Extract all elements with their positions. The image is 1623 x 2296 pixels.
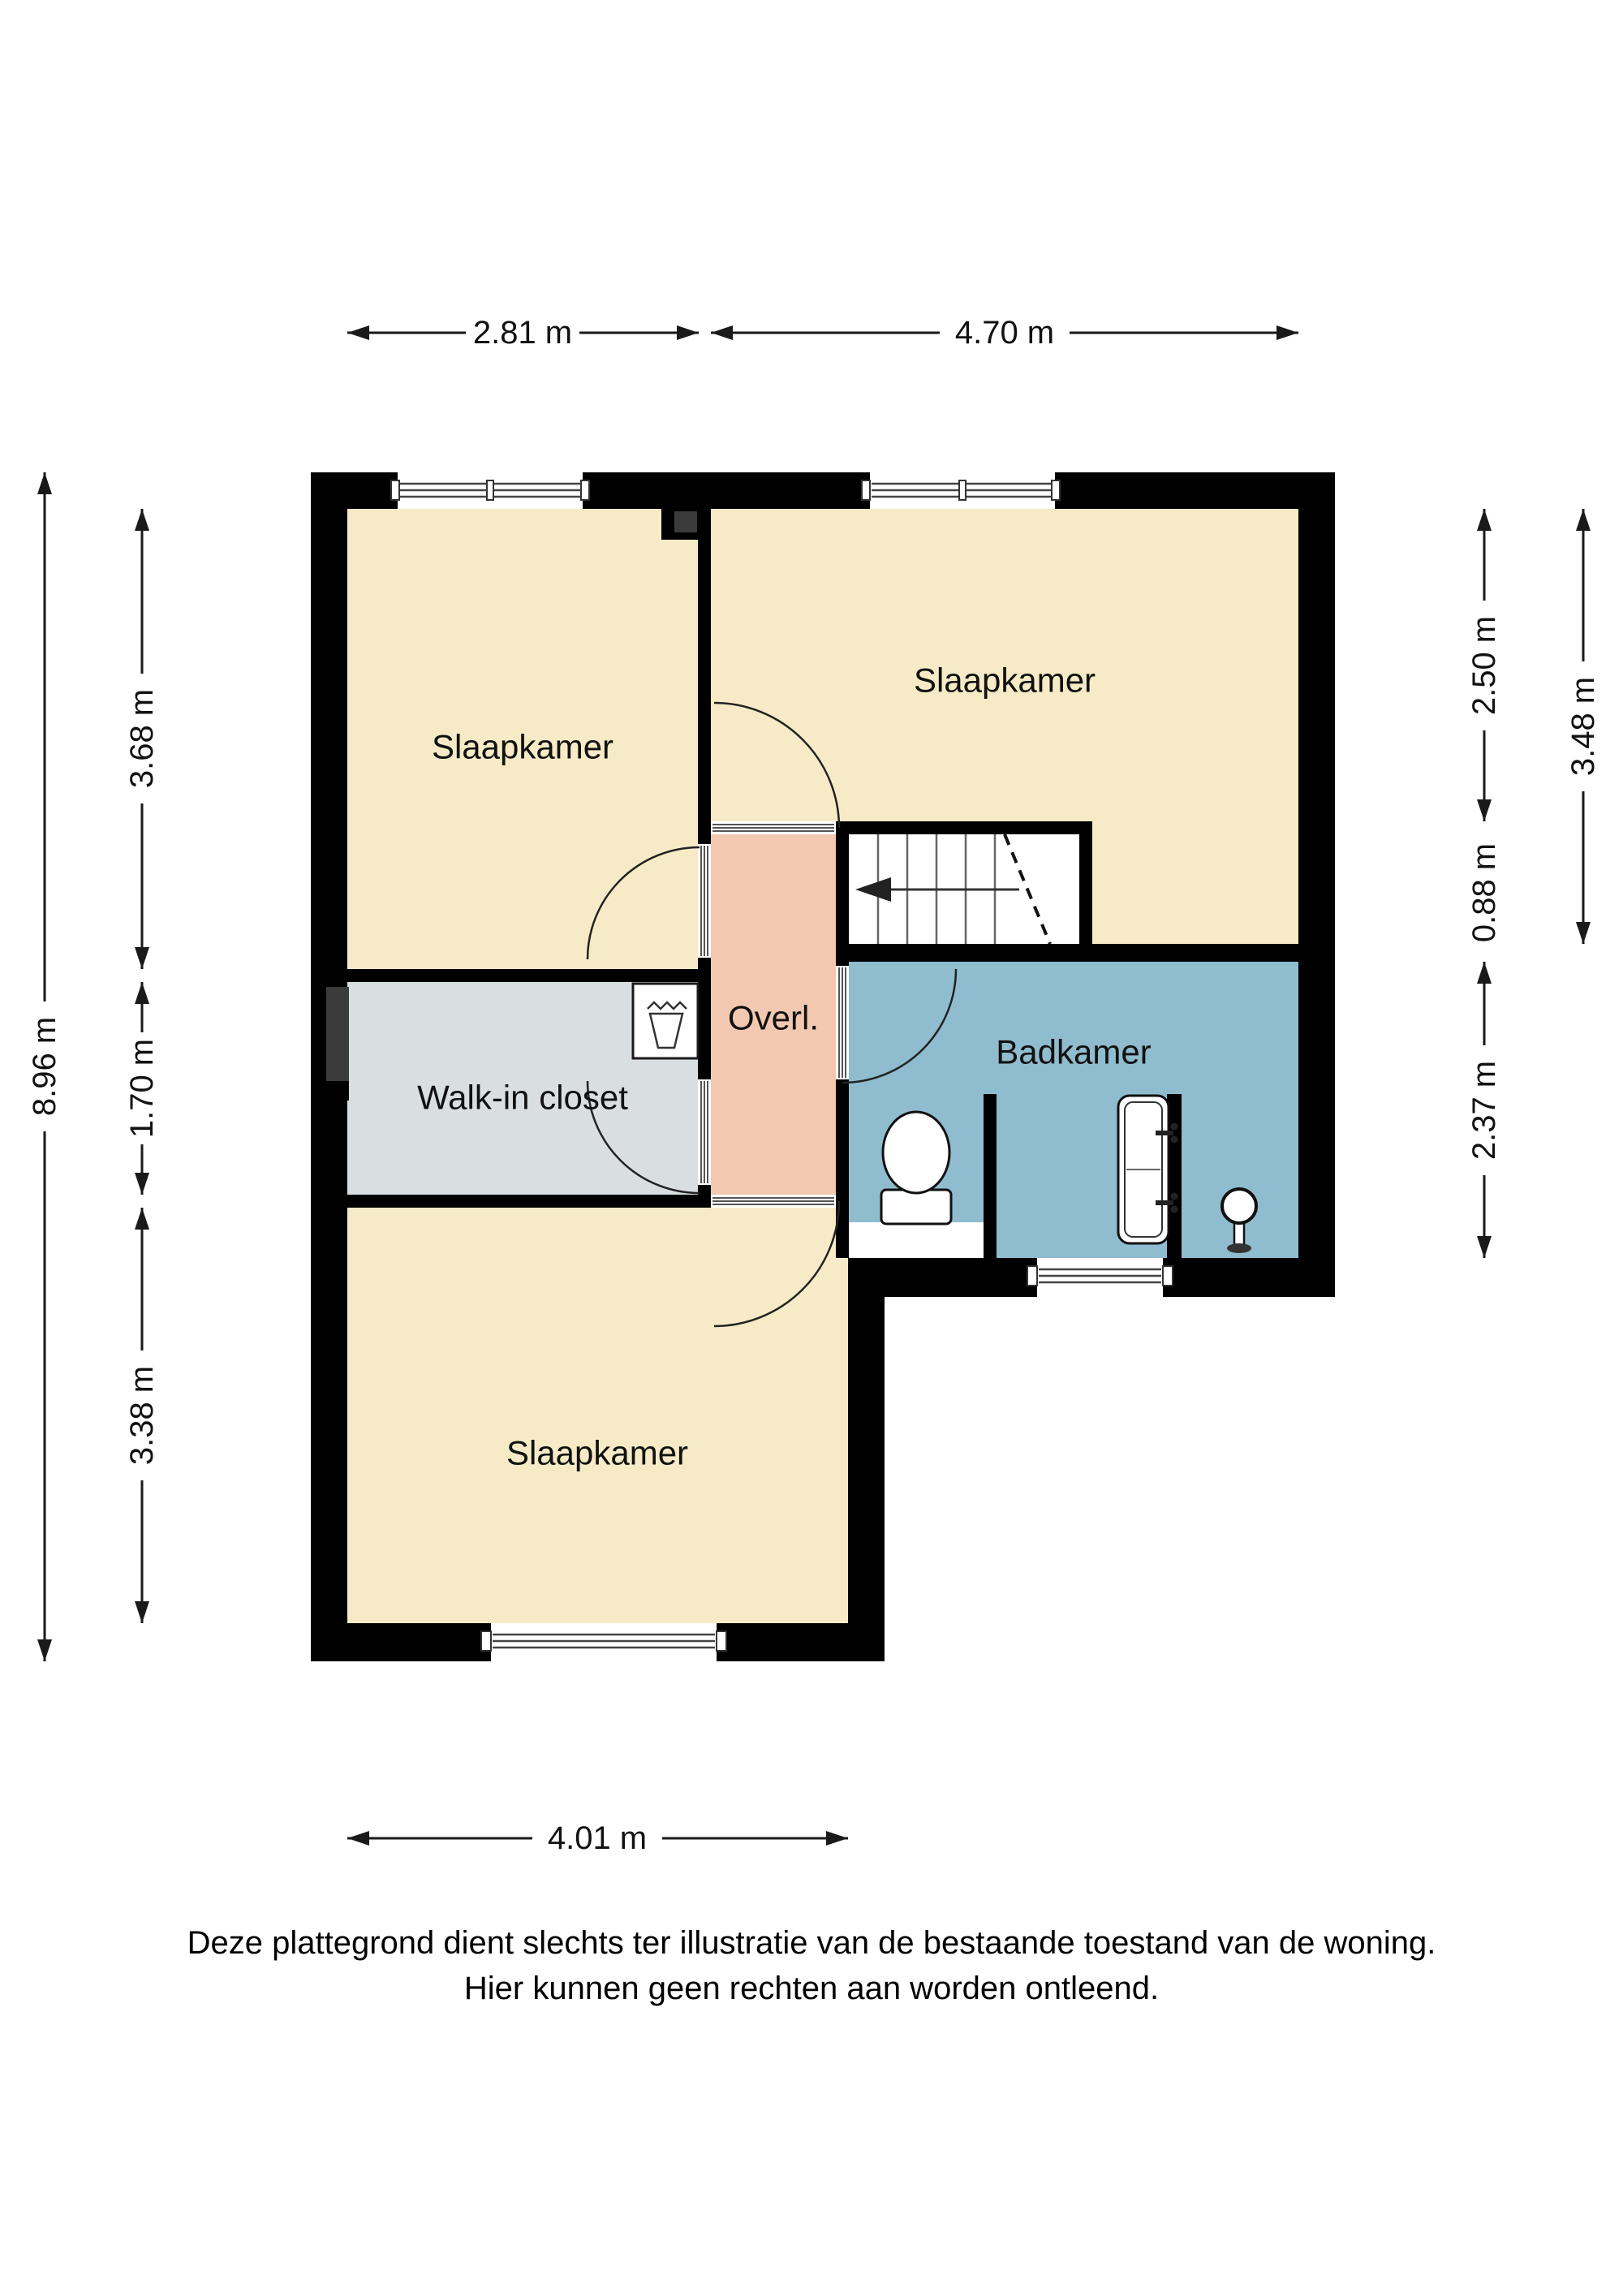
disclaimer-line-1: Deze plattegrond dient slechts ter illus… [187, 1925, 1436, 1961]
room-bedroom-bottom [347, 1208, 848, 1623]
floorplan-drawing: Slaapkamer Slaapkamer Walk-in closet Ove… [0, 0, 1623, 2296]
disclaimer-line-2: Hier kunnen geen rechten aan worden ontl… [464, 1971, 1159, 2006]
duct-top-icon [674, 511, 697, 532]
svg-text:2.37 m: 2.37 m [1466, 1061, 1502, 1160]
svg-text:3.38 m: 3.38 m [124, 1366, 160, 1465]
dimension-left-middle: 1.70 m [124, 982, 160, 1195]
dimension-bottom-width: 4.01 m [347, 1820, 848, 1856]
svg-text:2.50 m: 2.50 m [1466, 616, 1502, 715]
room-label-bedroom-bottom: Slaapkamer [506, 1434, 688, 1472]
washing-machine-icon [633, 984, 698, 1058]
dimension-left-top: 3.68 m [124, 509, 160, 969]
room-label-walk-in-closet: Walk-in closet [417, 1079, 628, 1117]
dimension-left-total: 8.96 m [27, 472, 62, 1661]
svg-text:3.68 m: 3.68 m [124, 689, 160, 788]
dimension-right-top: 2.50 m [1466, 509, 1502, 821]
dimension-left-bottom: 3.38 m [124, 1208, 160, 1623]
window-bedroom-bottom-icon [481, 1623, 726, 1661]
dimension-right-total: 3.48 m [1565, 509, 1601, 944]
room-label-bedroom-top-left: Slaapkamer [432, 728, 613, 766]
svg-text:4.01 m: 4.01 m [548, 1820, 647, 1856]
floorplan-page: Slaapkamer Slaapkamer Walk-in closet Ove… [0, 0, 1623, 2296]
window-bedroom-top-right-icon [862, 472, 1060, 509]
toilet-icon [881, 1112, 951, 1224]
dimension-top-width-right: 4.70 m [711, 315, 1298, 351]
svg-text:4.70 m: 4.70 m [955, 315, 1054, 351]
room-label-bathroom: Badkamer [996, 1033, 1151, 1071]
dimension-right-bathroom: 2.37 m [1466, 962, 1502, 1258]
svg-text:8.96 m: 8.96 m [27, 1017, 62, 1116]
dimension-right-stairs: 0.88 m [1466, 843, 1502, 942]
window-bedroom-top-left-icon [391, 472, 589, 509]
room-label-landing: Overl. [728, 999, 819, 1037]
double-washbasin-icon [1118, 1096, 1178, 1243]
room-label-bedroom-top-right: Slaapkamer [914, 661, 1096, 700]
duct-closet-icon [326, 987, 349, 1081]
svg-text:2.81 m: 2.81 m [473, 315, 572, 351]
dimension-top-width-left: 2.81 m [347, 315, 699, 351]
window-bathroom-icon [1027, 1258, 1173, 1297]
svg-text:1.70 m: 1.70 m [124, 1039, 160, 1138]
svg-text:3.48 m: 3.48 m [1565, 677, 1601, 776]
toilet-ledge [849, 1222, 984, 1258]
